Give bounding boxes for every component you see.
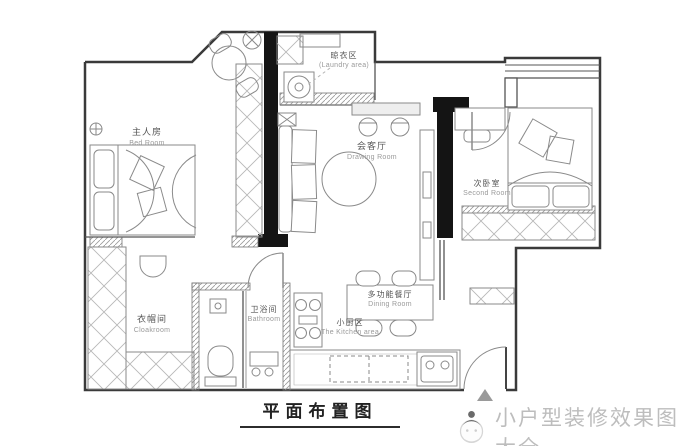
sofa bbox=[278, 113, 317, 233]
room-name-zh: 主人房 bbox=[129, 127, 164, 139]
watermark: 小户型装修效果图大全 bbox=[452, 394, 690, 446]
plan-title: 平面布置图 bbox=[240, 397, 400, 428]
room-name-en: Cloakroom bbox=[134, 326, 171, 335]
room-name-zh: 卫浴间 bbox=[248, 305, 281, 315]
washing-machine bbox=[284, 72, 314, 102]
dining-chair bbox=[390, 320, 416, 336]
room-name-en: The Kitchen area bbox=[321, 328, 379, 337]
washbasin bbox=[250, 352, 278, 376]
entrance-door bbox=[464, 347, 506, 401]
room-name-zh: 晾衣区 bbox=[319, 51, 369, 61]
room-name-zh: 次卧室 bbox=[463, 179, 511, 189]
shoe-cabinet bbox=[470, 288, 514, 304]
shower-icon bbox=[210, 299, 226, 313]
kitchen-sink bbox=[417, 352, 457, 386]
double-bed bbox=[90, 145, 196, 235]
floor-plan-page: 主人房 Bed Room 晾衣区 (Laundry area) 会客厅 Draw… bbox=[0, 0, 690, 446]
room-name-zh: 衣帽间 bbox=[134, 314, 171, 326]
master-wardrobe bbox=[236, 64, 262, 237]
cloakroom-wardrobe-bottom bbox=[126, 352, 194, 389]
bathroom-walls bbox=[192, 283, 290, 390]
tv-cabinet bbox=[420, 130, 434, 280]
bedroom2-wardrobe bbox=[462, 213, 595, 240]
toilet bbox=[205, 346, 236, 386]
label-dining-room: 多功能餐厅 Dining Room bbox=[368, 290, 413, 309]
room-name-zh: 会客厅 bbox=[347, 141, 397, 153]
bathroom-door bbox=[248, 253, 283, 288]
room-name-zh: 小厨区 bbox=[321, 318, 379, 328]
room-name-en: (Laundry area) bbox=[319, 61, 369, 70]
brand-mascot-icon bbox=[452, 404, 491, 446]
label-master-bedroom: 主人房 Bed Room bbox=[129, 127, 164, 148]
room-name-en: Bathroom bbox=[248, 315, 281, 324]
desk bbox=[455, 108, 505, 130]
cloakroom-wardrobe-left bbox=[88, 247, 126, 389]
stove bbox=[294, 293, 322, 347]
room-name-zh: 多功能餐厅 bbox=[368, 290, 413, 300]
bar-counter-stools bbox=[352, 103, 420, 136]
label-bathroom: 卫浴间 Bathroom bbox=[248, 305, 281, 324]
dining-chair bbox=[356, 271, 380, 286]
cloakroom-furniture bbox=[140, 256, 166, 277]
bed bbox=[508, 108, 592, 210]
brand-text: 小户型装修效果图大全 bbox=[495, 402, 690, 446]
label-second-bedroom: 次卧室 Second Room bbox=[463, 179, 511, 198]
bay-window bbox=[505, 65, 600, 71]
dressing-stool bbox=[140, 256, 166, 277]
room-name-en: Second Room bbox=[463, 189, 511, 198]
stool bbox=[464, 130, 490, 142]
label-cloakroom: 衣帽间 Cloakroom bbox=[134, 314, 171, 335]
dining-chair bbox=[392, 271, 416, 286]
label-living-room: 会客厅 Drawing Room bbox=[347, 141, 397, 162]
living-room-furniture bbox=[278, 103, 434, 280]
room-name-en: Bed Room bbox=[129, 139, 164, 148]
window-symbol-icon bbox=[90, 123, 102, 135]
laundry-cabinet bbox=[277, 36, 303, 64]
room-name-en: Dining Room bbox=[368, 300, 413, 309]
room-name-en: Drawing Room bbox=[347, 153, 397, 162]
label-laundry-area: 晾衣区 (Laundry area) bbox=[319, 51, 369, 70]
label-kitchen: 小厨区 The Kitchen area bbox=[321, 318, 379, 337]
